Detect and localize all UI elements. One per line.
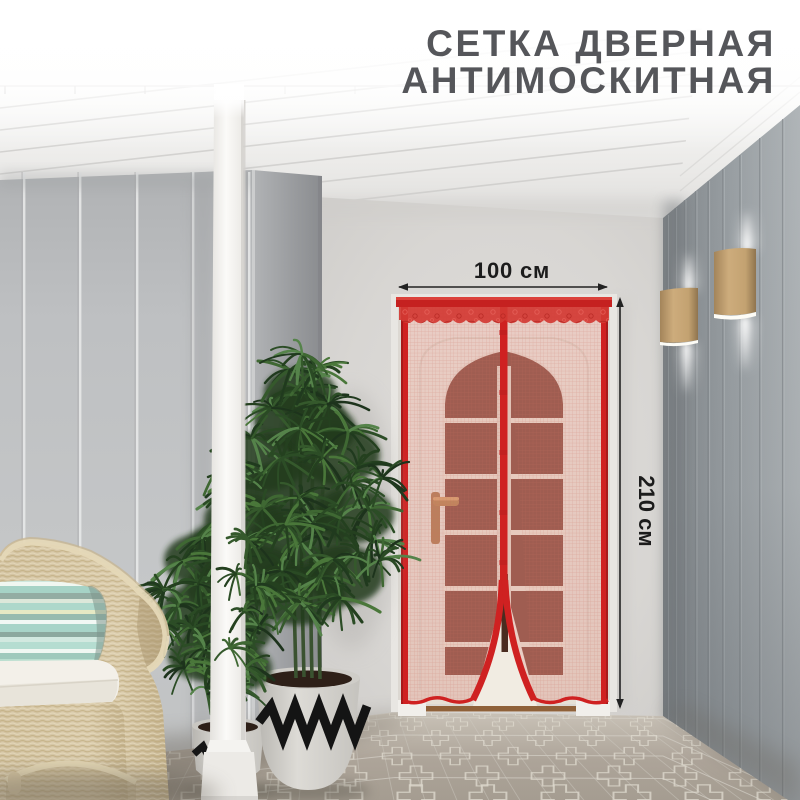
svg-text:100 см: 100 см xyxy=(474,258,550,283)
svg-text:АНТИМОСКИТНАЯ: АНТИМОСКИТНАЯ xyxy=(401,60,776,101)
svg-text:210 см: 210 см xyxy=(634,475,659,546)
svg-text:СЕТКА ДВЕРНАЯ: СЕТКА ДВЕРНАЯ xyxy=(426,23,776,64)
